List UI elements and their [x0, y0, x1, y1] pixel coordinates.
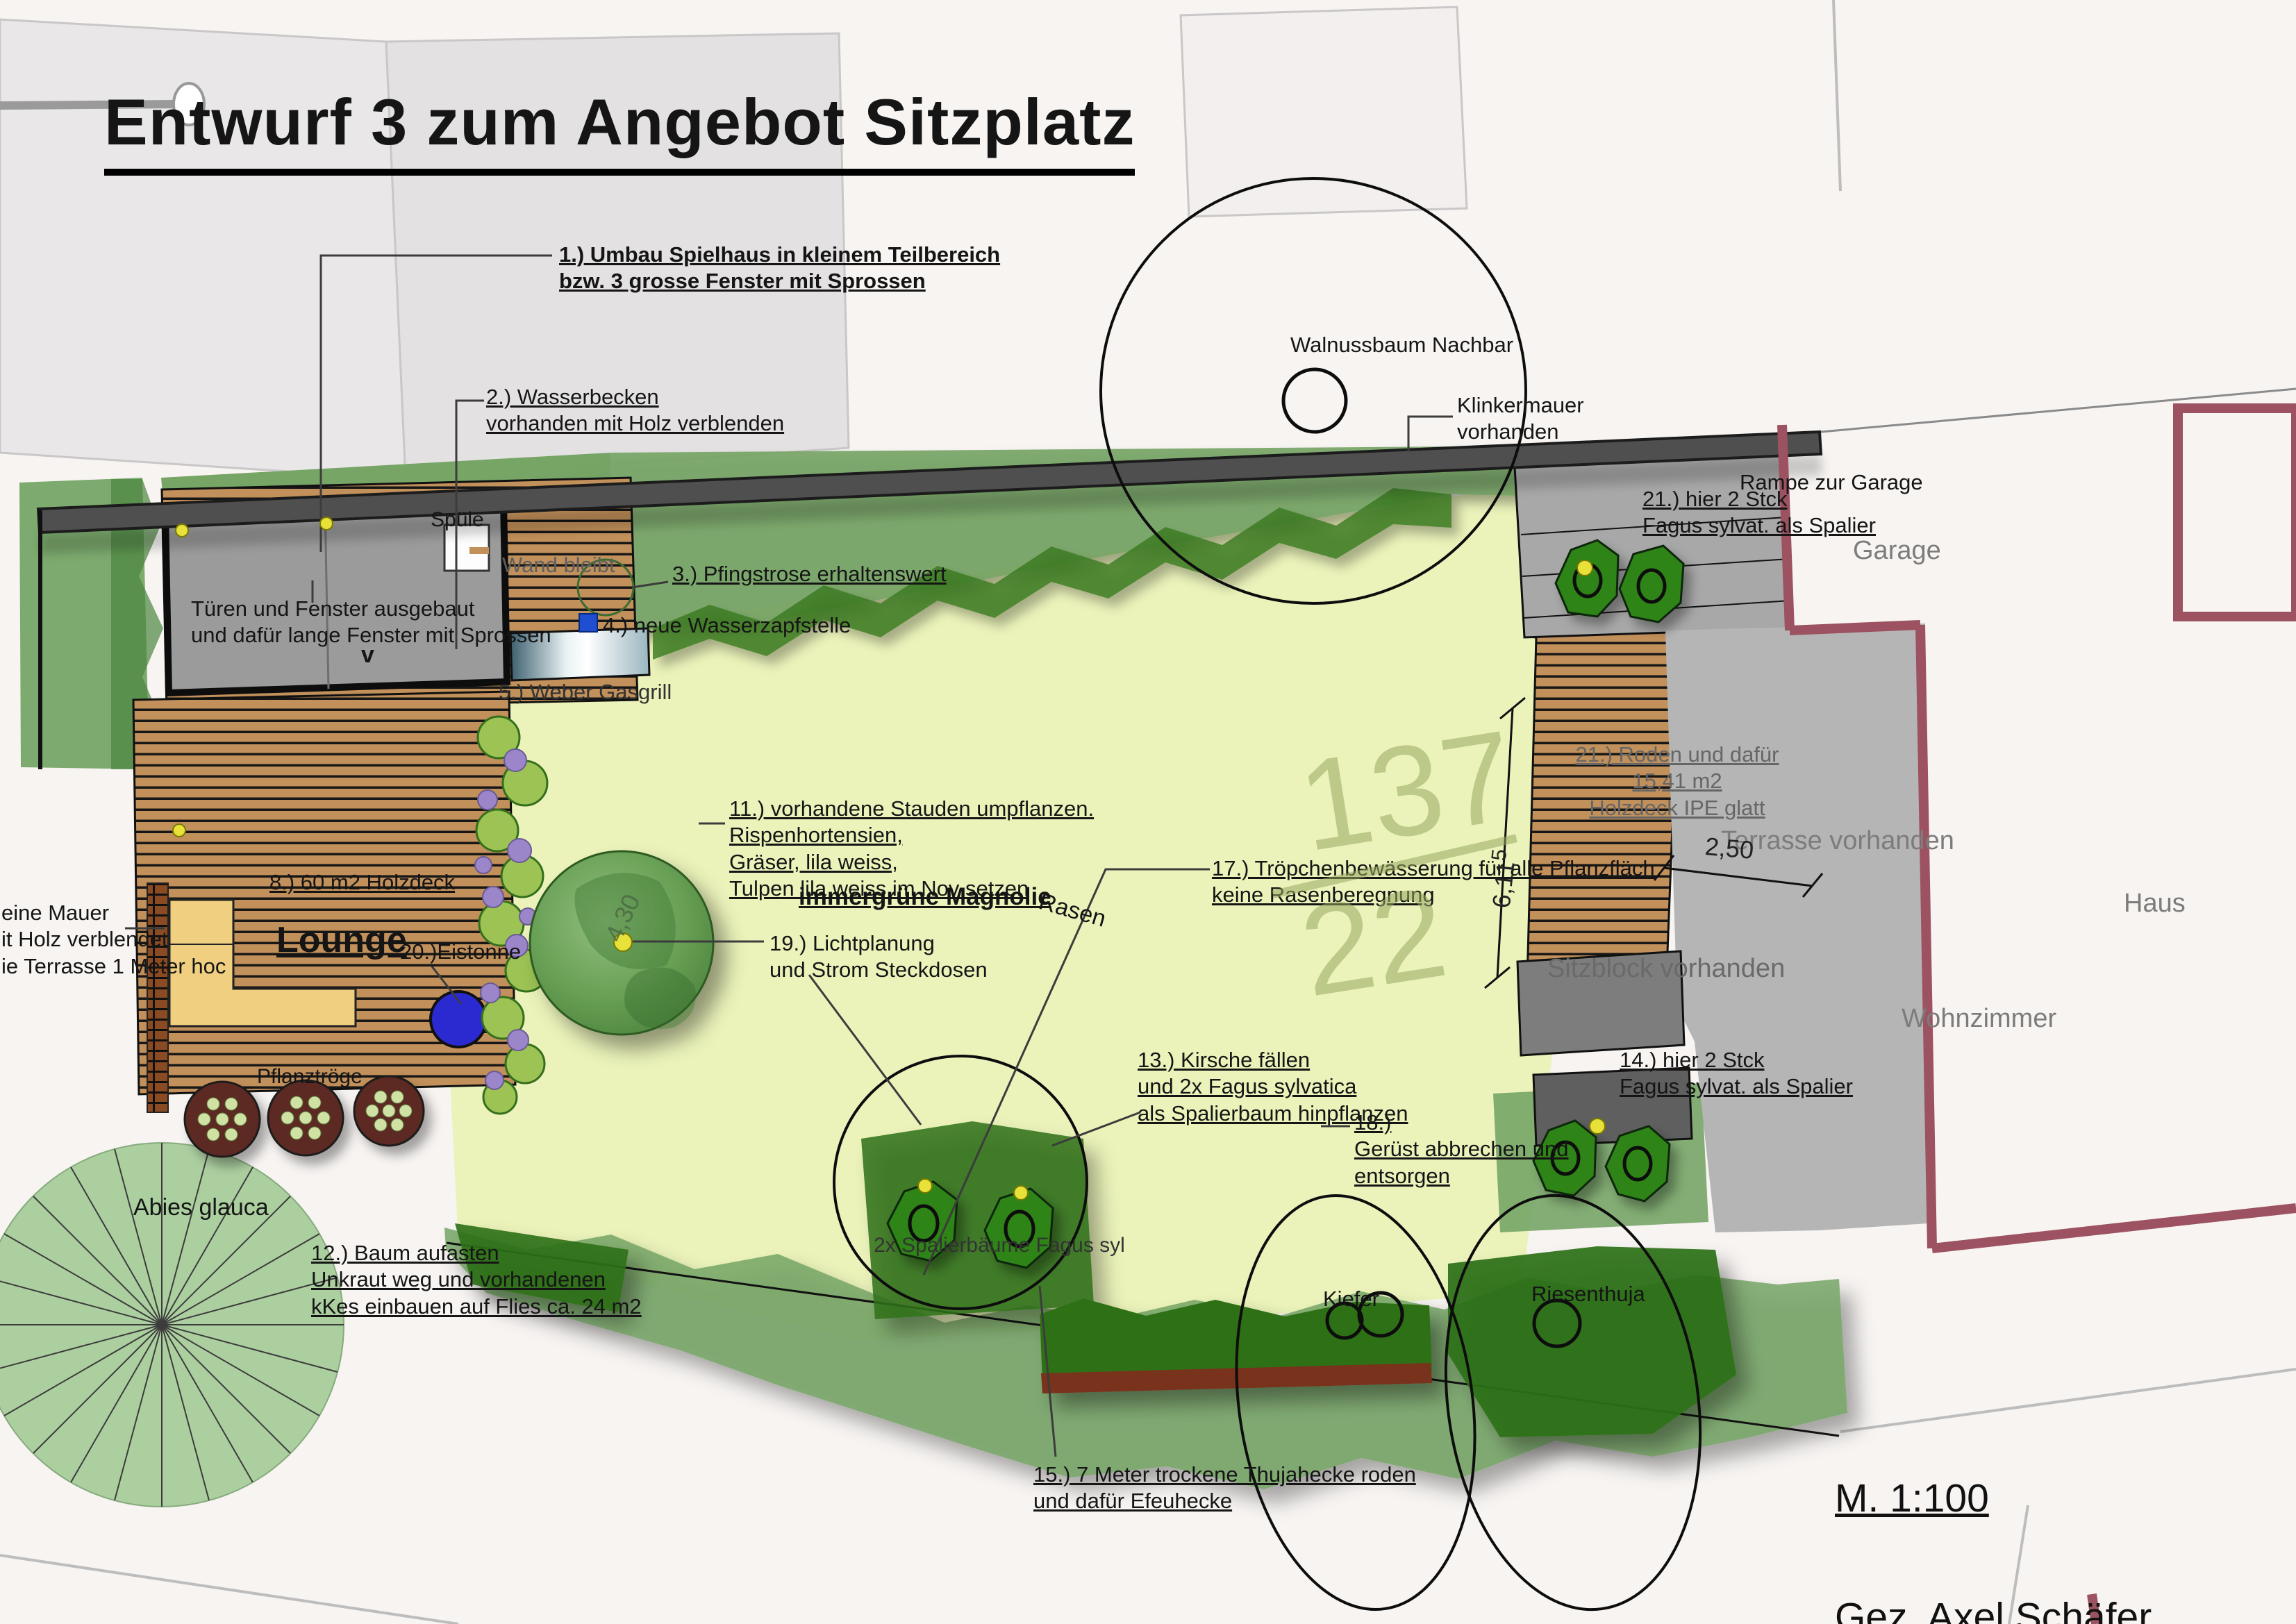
dimension-250: 2,50 — [1704, 831, 1755, 867]
label-lounge: Lounge — [276, 918, 407, 962]
label-note15: 15.) 7 Meter trockene Thujahecke roden u… — [1033, 1462, 1416, 1515]
label-klinkermauer: Klinkermauer vorhanden — [1457, 392, 1584, 446]
water-tap-icon — [579, 614, 597, 632]
label-mauer-links: eine Mauer it Holz verblendet ie Terrass… — [1, 900, 226, 980]
label-note21a: 21.) hier 2 Stck Fagus sylvat. als Spali… — [1642, 486, 1876, 539]
label-haus: Haus — [2124, 887, 2186, 920]
label-spuele: Spüle — [431, 507, 484, 533]
label-wohnzimmer: Wohnzimmer — [1902, 1003, 2056, 1035]
label-note1: 1.) Umbau Spielhaus in kleinem Teilberei… — [559, 242, 1000, 295]
label-note5: 5.) Weber Gasgrill — [499, 679, 672, 705]
parcel-number-watermark: 137 22 — [1251, 717, 1544, 1013]
label-note20: 20.)Eistonne — [400, 939, 521, 965]
label-note18: 18.) Gerüst abbrechen und entsorgen — [1354, 1110, 1569, 1189]
label-walnut: Walnussbaum Nachbar — [1290, 332, 1513, 358]
label-sitzblock: Sitzblock vorhanden — [1547, 953, 1785, 985]
label-abies: Abies glauca — [133, 1193, 269, 1222]
window-arrow-marker: v — [361, 640, 374, 669]
scale-signature-block: M. 1:100 Gez. Axel Schäfer 18.09.2025 — [1835, 1409, 2152, 1624]
label-riesenthuja: Riesenthuja — [1531, 1281, 1645, 1307]
author: Gez. Axel Schäfer — [1835, 1588, 2152, 1624]
garden-plan-page: Entwurf 3 zum Angebot Sitzplatz 1.) Umba… — [0, 0, 2296, 1624]
label-note2: 2.) Wasserbecken vorhanden mit Holz verb… — [486, 384, 784, 437]
scale-value: M. 1:100 — [1835, 1469, 2152, 1529]
label-kiefer: Kiefer — [1323, 1286, 1379, 1312]
label-garage: Garage — [1853, 535, 1941, 567]
label-wand-bleibt: Wand bleibt — [502, 552, 615, 578]
label-magnolie: immergrüne Magnolie — [799, 882, 1051, 912]
label-pflanztroege: Pflanztröge — [257, 1064, 363, 1089]
plan-drawing — [0, 0, 2296, 1624]
label-terrasse: Terrasse vorhanden — [1721, 825, 1954, 857]
label-note4: 4.) neue Wasserzapfstelle — [603, 612, 851, 639]
label-note8: 8.) 60 m2 Holzdeck — [269, 869, 455, 896]
page-title: Entwurf 3 zum Angebot Sitzplatz — [104, 82, 1135, 176]
label-note19: 19.) Lichtplanung und Strom Steckdosen — [770, 930, 988, 984]
label-note3: 3.) Pfingstrose erhaltenswert — [672, 561, 947, 587]
label-note21b: 21.) Roden und dafür 15,41 m2 Holzdeck I… — [1559, 742, 1795, 821]
label-note12: 12.) Baum aufasten Unkraut weg und vorha… — [311, 1240, 642, 1320]
label-spalier2x: 2x Spalierbäume Fagus syl — [874, 1232, 1125, 1258]
label-note14: 14.) hier 2 Stck Fagus sylvat. als Spali… — [1620, 1047, 1853, 1100]
